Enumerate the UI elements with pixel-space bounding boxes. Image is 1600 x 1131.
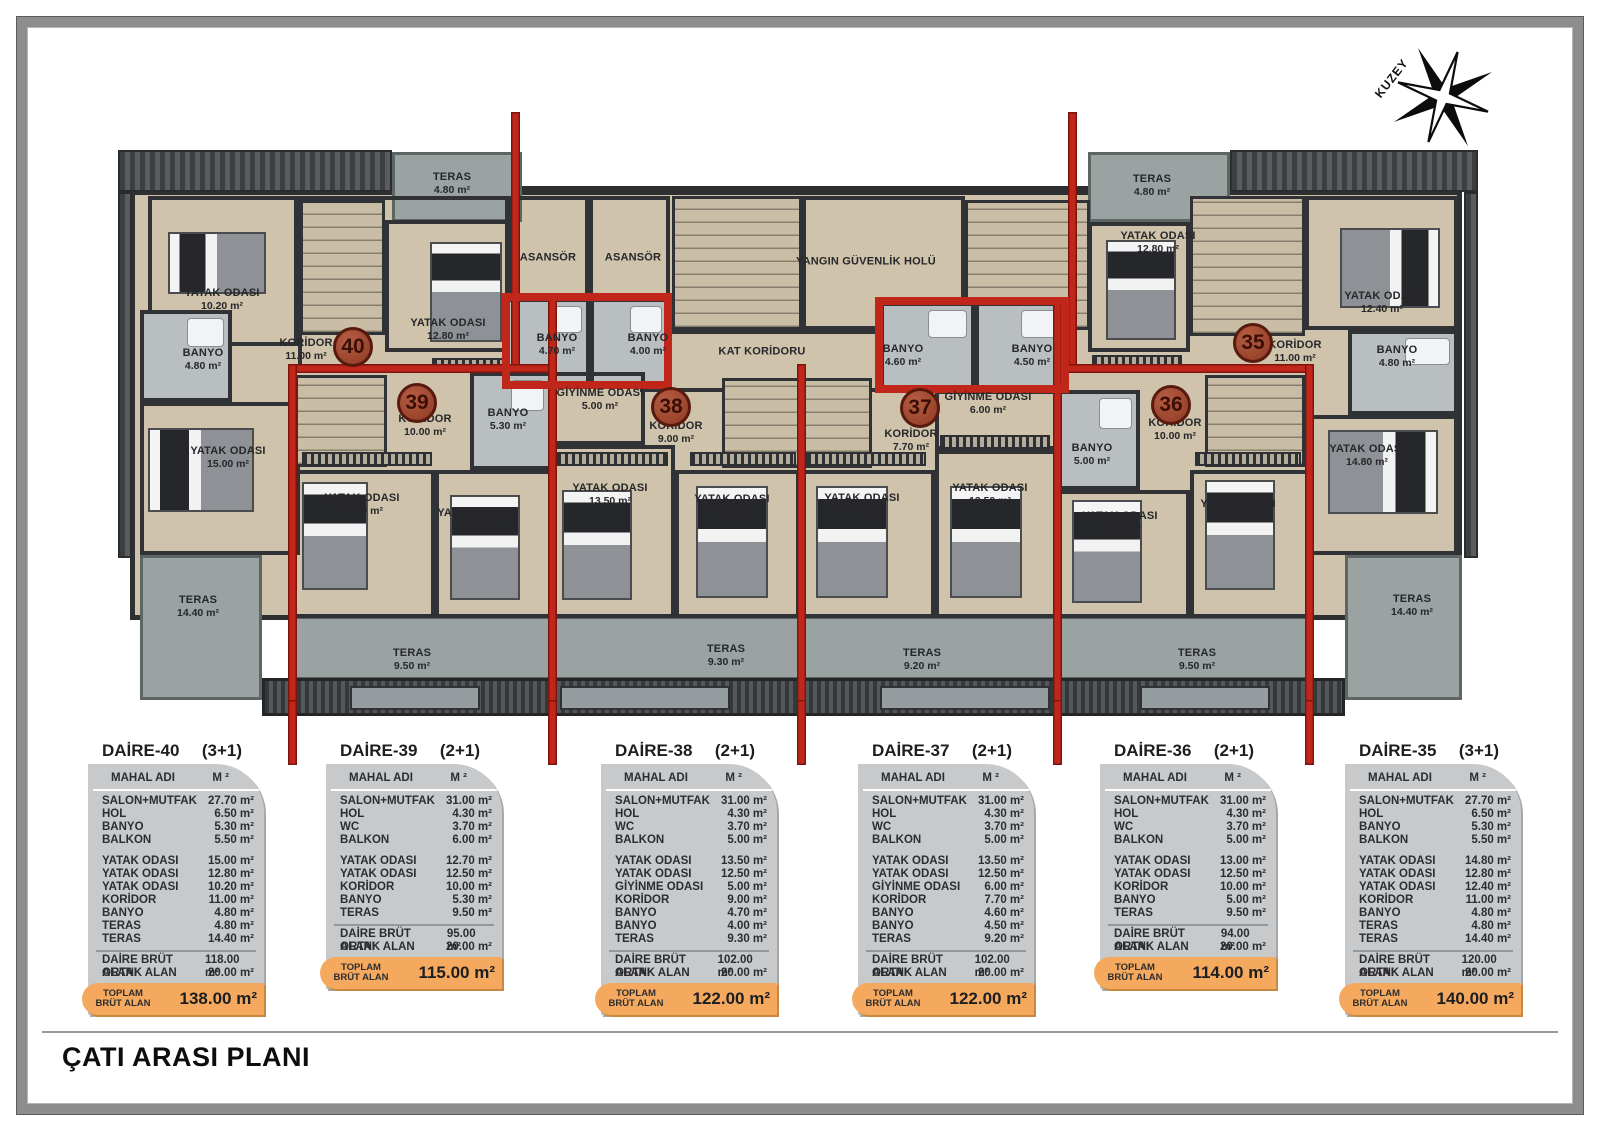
table-row: YATAK ODASI12.50 m² [601,868,777,881]
row-value: 4.60 m² [984,907,1024,920]
table-row: KORİDOR11.00 m² [88,894,264,907]
row-value: 4.80 m² [1471,920,1511,933]
row-group-gap [601,847,777,855]
room-area: 13.50 m² [572,495,647,508]
row-label: ORTAK ALAN [340,941,415,954]
row-value: 20.00 m² [446,941,492,954]
totals-separator [1353,950,1513,952]
room-area: 10.00 m² [398,426,451,439]
roof-band [118,150,392,192]
row-label: TERAS [1114,907,1153,920]
room-area: 9.00 m² [649,433,702,446]
row-value: 6.50 m² [1471,808,1511,821]
row-label: KORİDOR [615,894,669,907]
room-area: 9.50 m² [1178,660,1216,673]
row-label: TERAS [340,907,379,920]
unit-number-badge: 38 [651,387,691,427]
room-label: KORİDOR7.70 m² [884,428,937,454]
unit-table-card: MAHAL ADIM ²SALON+MUTFAK31.00 m²HOL4.30 … [1100,764,1276,989]
row-label: BALKON [615,834,664,847]
room-label: YATAK ODASI12.50 m² [324,492,399,518]
table-row: YATAK ODASI14.80 m² [1345,855,1521,868]
table-header-row: MAHAL ADIM ² [1350,767,1516,791]
header-col-room: MAHAL ADI [1123,771,1187,787]
row-value: 4.50 m² [984,920,1024,933]
row-value: 12.50 m² [978,868,1024,881]
unit-type: (2+1) [972,742,1012,760]
row-label: DAİRE BRÜT ALANI [340,928,447,941]
row-value: 20.00 m² [1465,967,1511,980]
table-row: BANYO4.60 m² [858,907,1034,920]
room-name: GİYİNME ODASI [557,387,644,400]
table-row: SALON+MUTFAK31.00 m² [601,795,777,808]
header-col-area: M ² [1224,771,1241,787]
room-label: BANYO4.00 m² [628,332,669,358]
room-area: 12.50 m² [324,505,399,518]
railing-window [1140,686,1270,710]
row-value: 118.00 m² [205,954,254,967]
row-value: 13.00 m² [1220,855,1266,868]
table-row: YATAK ODASI13.50 m² [601,855,777,868]
table-row: KORİDOR9.00 m² [601,894,777,907]
row-label: BANYO [102,821,144,834]
room-area: 4.60 m² [883,356,924,369]
totals-separator [609,950,769,952]
room-area: 12.50 m² [1200,511,1275,524]
table-row: TERAS9.20 m² [858,933,1034,946]
room-label: TERAS14.40 m² [177,594,219,620]
row-label: WC [1114,821,1133,834]
footer-label: TOPLAM BRÜT ALAN [1347,989,1413,1010]
table-row: HOL4.30 m² [601,808,777,821]
row-label: YATAK ODASI [615,868,691,881]
row-value: 5.50 m² [1471,834,1511,847]
row-label: YATAK ODASI [872,868,948,881]
row-value: 15.00 m² [208,855,254,868]
table-row: DAİRE BRÜT ALANI94.00 m² [1100,928,1276,941]
header-col-area: M ² [450,771,467,787]
row-label: TERAS [615,933,654,946]
unit-name: DAİRE-38 [615,742,692,760]
row-label: SALON+MUTFAK [1359,795,1454,808]
table-row: TERAS4.80 m² [88,920,264,933]
row-label: BALKON [1359,834,1408,847]
room-name: YATAK ODASI [190,445,265,458]
wardrobe-icon [1195,452,1301,466]
room-area: 4.80 m² [1377,357,1418,370]
row-value: 14.40 m² [208,933,254,946]
table-rows: SALON+MUTFAK27.70 m²HOL6.50 m²BANYO5.30 … [88,791,264,980]
row-value: 9.50 m² [1226,907,1266,920]
room-name: BANYO [1072,442,1113,455]
wardrobe-icon [302,452,432,466]
footer-total-value: 138.00 m² [180,989,261,1009]
unit-table: DAİRE-40(3+1)MAHAL ADIM ²SALON+MUTFAK27.… [88,742,264,1015]
room-name: BANYO [883,343,924,356]
row-label: YATAK ODASI [615,855,691,868]
row-label: BANYO [872,920,914,933]
top-recess [522,150,1088,192]
unit-number-badge: 35 [1233,323,1273,363]
row-label: BALKON [1114,834,1163,847]
row-group-gap [1345,847,1521,855]
row-label: DAİRE BRÜT ALANI [1114,928,1221,941]
table-row: YATAK ODASI12.50 m² [326,868,502,881]
row-value: 6.50 m² [214,808,254,821]
table-row: YATAK ODASI15.00 m² [88,855,264,868]
row-value: 27.70 m² [1465,795,1511,808]
row-value: 5.00 m² [1226,834,1266,847]
room-name: YATAK ODASI [324,492,399,505]
room-area: 9.20 m² [903,660,941,673]
row-label: YATAK ODASI [340,855,416,868]
table-rows: SALON+MUTFAK31.00 m²HOL4.30 m²WC3.70 m²B… [858,791,1034,980]
header-col-room: MAHAL ADI [111,771,175,787]
row-value: 31.00 m² [978,795,1024,808]
row-label: KORİDOR [1114,881,1168,894]
room-area: 7.70 m² [884,441,937,454]
bathroom-area [1057,390,1140,490]
room-label: GİYİNME ODASI6.00 m² [945,391,1032,417]
row-label: SALON+MUTFAK [340,795,435,808]
room-area: 4.00 m² [628,345,669,358]
railing-window [880,686,1050,710]
unit-table-card: MAHAL ADIM ²SALON+MUTFAK27.70 m²HOL6.50 … [88,764,264,1015]
table-row: WC3.70 m² [1100,821,1276,834]
row-label: WC [340,821,359,834]
table-row: HOL6.50 m² [88,808,264,821]
header-col-room: MAHAL ADI [624,771,688,787]
table-row: TERAS14.40 m² [1345,933,1521,946]
room-label: KORİDOR11.00 m² [1268,339,1321,365]
header-col-area: M ² [212,771,229,787]
room-name: YATAK ODASI [410,317,485,330]
unit-name: DAİRE-37 [872,742,949,760]
room-area: 4.50 m² [1012,356,1053,369]
room-label: TERAS14.40 m² [1391,593,1433,619]
room-name: KORİDOR [884,428,937,441]
table-row: BANYO5.00 m² [1100,894,1276,907]
row-label: BALKON [102,834,151,847]
room-name: TERAS [1133,173,1171,186]
table-row: ORTAK ALAN20.00 m² [88,967,264,980]
room-area: 6.00 m² [945,404,1032,417]
room-name: YATAK ODASI [1344,290,1419,303]
row-value: 9.20 m² [984,933,1024,946]
row-value: 7.70 m² [984,894,1024,907]
row-label: YATAK ODASI [1359,855,1435,868]
row-label: ORTAK ALAN [1114,941,1189,954]
table-header-row: MAHAL ADIM ² [93,767,259,791]
table-footer: TOPLAM BRÜT ALAN138.00 m² [82,983,264,1015]
room-name: ASANSÖR [605,252,661,265]
unit-type: (2+1) [715,742,755,760]
row-value: 12.70 m² [446,855,492,868]
room-area: 14.40 m² [1391,606,1433,619]
room-name: YATAK ODASI [572,482,647,495]
unit-type: (3+1) [202,742,242,760]
unit-table-card: MAHAL ADIM ²SALON+MUTFAK27.70 m²HOL6.50 … [1345,764,1521,1015]
row-value: 27.70 m² [208,795,254,808]
unit-boundary-line [1068,112,1077,368]
room-name: YATAK ODASI [694,493,769,506]
row-label: TERAS [1359,920,1398,933]
room-label: TERAS9.30 m² [707,643,745,669]
row-value: 3.70 m² [984,821,1024,834]
header-col-area: M ² [725,771,742,787]
table-row: YATAK ODASI10.20 m² [88,881,264,894]
room-name: BANYO [183,347,224,360]
table-row: HOL4.30 m² [326,808,502,821]
room-label: YATAK ODASI14.80 m² [1329,443,1404,469]
table-row: HOL4.30 m² [1100,808,1276,821]
room-label: TERAS4.80 m² [433,171,471,197]
row-value: 5.50 m² [214,834,254,847]
wardrobe-icon [940,435,1050,449]
room-area: 15.00 m² [190,458,265,471]
header-col-room: MAHAL ADI [1368,771,1432,787]
table-row: WC3.70 m² [601,821,777,834]
row-value: 31.00 m² [1220,795,1266,808]
wardrobe-icon [690,452,796,466]
row-value: 12.50 m² [446,868,492,881]
row-label: KORİDOR [340,881,394,894]
row-value: 14.80 m² [1465,855,1511,868]
table-row: KORİDOR10.00 m² [1100,881,1276,894]
table-row: GİYİNME ODASI6.00 m² [858,881,1034,894]
table-row: SALON+MUTFAK27.70 m² [88,795,264,808]
row-value: 20.00 m² [1220,941,1266,954]
room-name: TERAS [1178,647,1216,660]
room-label: KAT KORİDORU [718,346,805,359]
bed-icon [168,232,266,294]
room-area: 13.50 m² [952,495,1027,508]
room-label: YATAK ODASI12.50 m² [824,492,899,518]
table-row: BANYO5.30 m² [326,894,502,907]
unit-table-card: MAHAL ADIM ²SALON+MUTFAK31.00 m²HOL4.30 … [601,764,777,1015]
row-label: HOL [1359,808,1383,821]
unit-boundary-line [1305,700,1314,765]
railing-window [350,686,480,710]
room-name: YATAK ODASI [1329,443,1404,456]
table-row: GİYİNME ODASI5.00 m² [601,881,777,894]
row-label: GİYİNME ODASI [872,881,960,894]
unit-number-badge: 37 [900,388,940,428]
row-value: 102.00 m² [718,954,767,967]
room-area: 13.00 m² [1082,523,1157,536]
room-label: GİYİNME ODASI5.00 m² [557,387,644,413]
unit-boundary-line [797,700,806,765]
terrace-area [140,555,262,700]
row-label: HOL [102,808,126,821]
roof-band [1464,192,1478,558]
row-label: YATAK ODASI [102,868,178,881]
table-row: BANYO4.80 m² [88,907,264,920]
row-label: YATAK ODASI [1359,881,1435,894]
table-row: BANYO4.70 m² [601,907,777,920]
row-label: DAİRE BRÜT ALANI [102,954,205,967]
room-area: 11.00 m² [279,350,332,363]
row-label: BANYO [1359,907,1401,920]
row-value: 94.00 m² [1221,928,1266,941]
row-label: BALKON [872,834,921,847]
unit-table-title: DAİRE-35(3+1) [1345,742,1521,760]
row-group-gap [88,847,264,855]
table-row: BANYO4.80 m² [1345,907,1521,920]
unit-table: DAİRE-39(2+1)MAHAL ADIM ²SALON+MUTFAK31.… [326,742,502,989]
bathroom-area [1348,330,1458,415]
row-label: KORİDOR [102,894,156,907]
row-value: 12.50 m² [721,868,767,881]
room-name: YATAK ODASI [437,507,512,520]
room-label: KORİDOR11.00 m² [279,337,332,363]
room-name: YANGIN GÜVENLİK HOLÜ [781,256,951,269]
row-value: 5.30 m² [1471,821,1511,834]
unit-type: (3+1) [1459,742,1499,760]
row-value: 5.00 m² [727,834,767,847]
row-value: 4.00 m² [727,920,767,933]
room-area: 14.40 m² [177,607,219,620]
title-divider-line [42,1031,1558,1033]
table-rows: SALON+MUTFAK31.00 m²HOL4.30 m²WC3.70 m²B… [1100,791,1276,954]
row-group-gap [1100,847,1276,855]
row-value: 20.00 m² [208,967,254,980]
table-row: DAİRE BRÜT ALANI102.00 m² [858,954,1034,967]
room-label: ASANSÖR [520,252,576,265]
unit-table-title: DAİRE-36(2+1) [1100,742,1276,760]
row-label: TERAS [1359,933,1398,946]
room-label: BANYO4.80 m² [1377,344,1418,370]
row-label: ORTAK ALAN [872,967,947,980]
table-row: TERAS9.30 m² [601,933,777,946]
room-area: 9.50 m² [393,660,431,673]
unit-name: DAİRE-40 [102,742,179,760]
row-label: DAİRE BRÜT ALANI [872,954,975,967]
row-value: 4.30 m² [984,808,1024,821]
table-row: DAİRE BRÜT ALANI102.00 m² [601,954,777,967]
stairs-area [1190,196,1305,336]
row-value: 5.30 m² [214,821,254,834]
room-label: YATAK ODASI13.50 m² [572,482,647,508]
row-label: TERAS [102,933,141,946]
row-value: 3.70 m² [452,821,492,834]
table-footer: TOPLAM BRÜT ALAN122.00 m² [595,983,777,1015]
row-label: BANYO [102,907,144,920]
unit-boundary-line [288,700,297,765]
footer-total-value: 122.00 m² [693,989,774,1009]
table-row: KORİDOR7.70 m² [858,894,1034,907]
room-label: YATAK ODASI15.00 m² [190,445,265,471]
unit-boundary-line [1053,364,1314,373]
header-col-room: MAHAL ADI [881,771,945,787]
room-area: 12.80 m² [1120,243,1195,256]
table-row: YATAK ODASI12.80 m² [1345,868,1521,881]
unit-table: DAİRE-38(2+1)MAHAL ADIM ²SALON+MUTFAK31.… [601,742,777,1015]
row-value: 14.40 m² [1465,933,1511,946]
row-value: 12.40 m² [1465,881,1511,894]
row-label: WC [615,821,634,834]
table-row: YATAK ODASI12.40 m² [1345,881,1521,894]
row-label: YATAK ODASI [872,855,948,868]
room-area: 10.00 m² [1148,430,1201,443]
table-row: BANYO4.50 m² [858,920,1034,933]
table-row: DAİRE BRÜT ALANI95.00 m² [326,928,502,941]
room-label: YATAK ODASI13.00 m² [1082,510,1157,536]
row-value: 13.50 m² [721,855,767,868]
room-name: BANYO [537,332,578,345]
room-name: BANYO [628,332,669,345]
room-name: YATAK ODASI [824,492,899,505]
unit-name: DAİRE-36 [1114,742,1191,760]
row-value: 5.00 m² [727,881,767,894]
table-header-row: MAHAL ADIM ² [606,767,772,791]
table-row: BALKON6.00 m² [326,834,502,847]
totals-separator [96,950,256,952]
table-row: TERAS9.50 m² [326,907,502,920]
row-value: 95.00 m² [447,928,492,941]
table-row: BALKON5.00 m² [1100,834,1276,847]
totals-separator [1108,924,1268,926]
terrace-area [1345,555,1462,700]
table-row: WC3.70 m² [858,821,1034,834]
row-value: 4.30 m² [727,808,767,821]
row-label: WC [872,821,891,834]
table-row: WC3.70 m² [326,821,502,834]
footer-label: TOPLAM BRÜT ALAN [328,963,394,984]
header-col-area: M ² [1469,771,1486,787]
room-name: TERAS [433,171,471,184]
room-label: BANYO4.80 m² [183,347,224,373]
room-name: BANYO [488,407,529,420]
unit-table-title: DAİRE-39(2+1) [326,742,502,760]
footer-total-value: 115.00 m² [418,963,498,983]
row-value: 6.00 m² [452,834,492,847]
room-name: YATAK ODASI [184,287,259,300]
table-rows: SALON+MUTFAK31.00 m²HOL4.30 m²WC3.70 m²B… [601,791,777,980]
roof-band [1230,150,1478,192]
unit-table: DAİRE-37(2+1)MAHAL ADIM ²SALON+MUTFAK31.… [858,742,1034,1015]
room-name: KAT KORİDORU [718,346,805,359]
room-name: KORİDOR [1268,339,1321,352]
row-label: DAİRE BRÜT ALANI [1359,954,1462,967]
row-value: 9.30 m² [727,933,767,946]
table-row: ORTAK ALAN20.00 m² [858,967,1034,980]
room-area: 4.70 m² [537,345,578,358]
table-row: KORİDOR11.00 m² [1345,894,1521,907]
table-footer: TOPLAM BRÜT ALAN122.00 m² [852,983,1034,1015]
room-label: BANYO5.00 m² [1072,442,1113,468]
row-group-gap [858,847,1034,855]
unit-number-badge: 39 [397,383,437,423]
room-label: BANYO5.30 m² [488,407,529,433]
room-outline [589,196,670,298]
table-row: ORTAK ALAN20.00 m² [1100,941,1276,954]
room-label: YATAK ODASI12.70 m² [437,507,512,533]
room-label: TERAS4.80 m² [1133,173,1171,199]
room-label: YATAK ODASI12.50 m² [1200,498,1275,524]
unit-table-title: DAİRE-37(2+1) [858,742,1034,760]
unit-name: DAİRE-39 [340,742,417,760]
table-header-row: MAHAL ADIM ² [331,767,497,791]
stairs-area [300,200,385,335]
room-area: 12.50 m² [694,506,769,519]
row-label: BANYO [340,894,382,907]
room-label: YATAK ODASI13.50 m² [952,482,1027,508]
room-name: TERAS [1391,593,1433,606]
table-row: DAİRE BRÜT ALANI118.00 m² [88,954,264,967]
table-row: SALON+MUTFAK27.70 m² [1345,795,1521,808]
table-row: SALON+MUTFAK31.00 m² [858,795,1034,808]
